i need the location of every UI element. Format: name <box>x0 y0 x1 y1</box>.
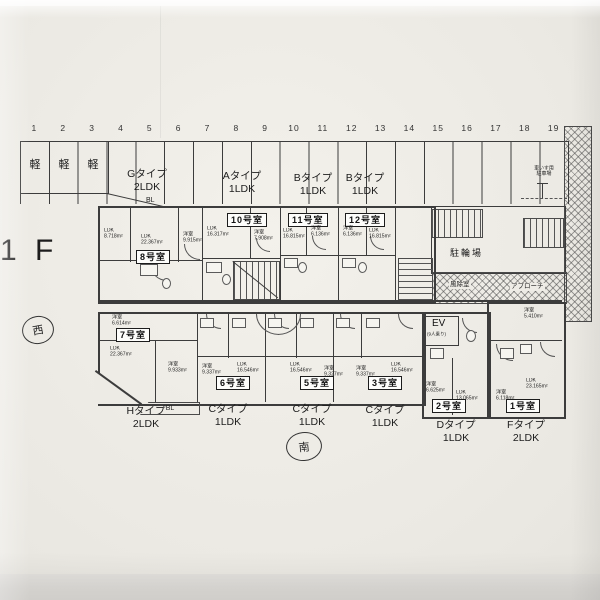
parking-stall-number: 13 <box>366 123 395 135</box>
wheelchair-parking-note: 車いす用 駐車場 <box>521 166 568 177</box>
room-area-label: 洋室 6.614m² <box>112 315 131 326</box>
unit-number-badge: 12号室 <box>345 213 385 227</box>
type-label-g: Gタイプ 2LDK <box>110 168 184 194</box>
type-layout: 2LDK <box>126 418 166 431</box>
room-area-label: 洋室 9.933m² <box>168 362 187 373</box>
interior-wall <box>487 340 562 341</box>
wheelchair-parking-marker <box>537 183 548 184</box>
type-name: Dタイプ <box>436 419 476 432</box>
room-area: 22.367m² <box>110 352 132 358</box>
approach-label: アプローチ <box>510 283 545 291</box>
interior-wall <box>228 314 229 358</box>
type-name: Gタイプ <box>110 168 184 181</box>
fixture-box <box>520 344 532 354</box>
parking-stall-number: 16 <box>453 123 482 135</box>
toilet-fixture <box>298 262 307 273</box>
unit-number-badge: 11号室 <box>288 213 328 227</box>
room-area: 23.165m² <box>526 384 548 390</box>
interior-wall <box>361 314 362 358</box>
room-area-label: 洋室 9.915m² <box>183 232 202 243</box>
interior-wall <box>155 340 156 402</box>
room-area: 6.136m² <box>311 232 330 238</box>
wheelchair-stall-dashed-line <box>521 198 567 199</box>
compass-west-label: 西 <box>31 321 45 339</box>
type-layout: 1LDK <box>328 185 402 198</box>
room-area: 16.546m² <box>237 368 259 374</box>
interior-wall <box>178 208 179 262</box>
type-layout: 1LDK <box>292 416 332 429</box>
room-area: 16.317m² <box>207 232 229 238</box>
floorplan-photo: 1 2 3 4 5 6 7 8 9 10 11 12 13 14 15 16 1… <box>0 0 600 600</box>
unit-divider-wall <box>202 208 203 300</box>
parking-stall-number: 14 <box>395 123 424 135</box>
room-area-label: LDK 22.367m² <box>141 234 163 245</box>
unit-number-badge: 5号室 <box>300 376 334 390</box>
fixture-box <box>300 318 314 328</box>
parking-stall-number: 11 <box>308 123 337 135</box>
balcony-strip: BL <box>140 402 200 415</box>
room-area-label: 洋室 6.136m² <box>343 226 362 237</box>
fixture-box <box>284 258 298 268</box>
interior-wall <box>202 258 280 259</box>
elevator-label: EV <box>432 318 445 329</box>
interior-wall <box>280 255 395 256</box>
parking-stall-number: 7 <box>193 123 222 135</box>
room-area-label: 洋室 5.410m² <box>524 308 543 319</box>
elevator-capacity: (9人乗り) <box>427 331 446 337</box>
unit-divider-wall <box>280 208 281 300</box>
bicycle-parking-label: 駐輪場 <box>450 246 483 259</box>
room-area: 16.815m² <box>369 234 391 240</box>
room-area-label: LDK 8.718m² <box>104 228 123 239</box>
type-layout: 1LDK <box>205 183 279 196</box>
hatched-border-strip <box>564 126 592 322</box>
unit-divider-wall <box>197 314 198 402</box>
paper-crease <box>160 6 161 138</box>
room-area: 22.367m² <box>141 240 163 246</box>
room-area: 16.546m² <box>391 368 413 374</box>
windbreak-room-label: 風除室 <box>449 281 471 289</box>
stairwell <box>398 258 433 301</box>
parking-stall-number: 12 <box>337 123 366 135</box>
bicycle-rack <box>431 209 483 238</box>
room-area: 6.625m² <box>426 388 445 394</box>
room-area-label: LDK 16.546m² <box>391 362 413 373</box>
type-label-c3: Cタイプ 1LDK <box>365 404 405 430</box>
room-area: 9.915m² <box>183 238 202 244</box>
floor-label: 1 F <box>0 234 58 268</box>
interior-wall <box>197 356 265 357</box>
parking-stall-number: 9 <box>251 123 280 135</box>
unit-divider-wall <box>338 208 339 300</box>
type-layout: 2LDK <box>110 181 184 194</box>
type-name: Cタイプ <box>292 403 332 416</box>
kei-stall-label: 軽 <box>55 156 73 172</box>
kei-stall-label: 軽 <box>84 156 102 172</box>
parking-stall-number: 5 <box>135 123 164 135</box>
type-name: Cタイプ <box>208 403 248 416</box>
interior-wall <box>333 356 422 357</box>
room-area: 6.614m² <box>112 321 131 327</box>
room-area-label: LDK 16.815m² <box>369 228 391 239</box>
unit-divider-wall <box>395 208 396 300</box>
fixture-box <box>342 258 356 268</box>
room-area-label: 洋室 6.625m² <box>426 382 445 393</box>
type-label-f: Fタイプ 2LDK <box>506 419 546 445</box>
fixture-box <box>140 264 158 276</box>
room-area-label: LDK 23.165m² <box>526 378 548 389</box>
type-name: Bタイプ <box>328 172 402 185</box>
wheelchair-parking-marker <box>542 183 543 198</box>
fixture-box <box>500 348 514 359</box>
parking-stall-number: 4 <box>107 123 136 135</box>
toilet-fixture <box>358 262 367 273</box>
balcony-label-top: BL <box>146 197 155 204</box>
bicycle-rack <box>523 218 564 248</box>
room-area-label: LDK 22.367m² <box>110 346 132 357</box>
toilet-fixture <box>222 274 231 285</box>
fixture-box <box>200 318 214 328</box>
type-name: Aタイプ <box>205 170 279 183</box>
unit-number-badge: 7号室 <box>116 328 150 342</box>
compass-south-label: 南 <box>298 438 311 455</box>
interior-wall <box>130 208 131 262</box>
parking-stall-number: 2 <box>49 123 78 135</box>
toilet-fixture <box>162 278 171 289</box>
fixture-box <box>366 318 380 328</box>
unit-number-badge: 1号室 <box>506 399 540 413</box>
parking-stall-number: 1 <box>20 123 49 135</box>
unit-number-badge: 2号室 <box>432 399 466 413</box>
parking-stall-number: 3 <box>78 123 107 135</box>
unit-number-badge: 3号室 <box>368 376 402 390</box>
type-layout: 1LDK <box>208 416 248 429</box>
fixture-box <box>206 262 222 273</box>
room-area-label: LDK 16.317m² <box>207 226 229 237</box>
room-area: 6.136m² <box>343 232 362 238</box>
parking-number-row: 1 2 3 4 5 6 7 8 9 10 11 12 13 14 15 16 1… <box>20 123 568 135</box>
type-label-d: Dタイプ 1LDK <box>436 419 476 445</box>
room-area: 9.337m² <box>202 370 221 376</box>
room-area: 7.908m² <box>254 236 273 242</box>
room-area-label: 洋室 7.908m² <box>254 230 273 241</box>
type-label-c2: Cタイプ 1LDK <box>292 403 332 429</box>
room-area: 5.410m² <box>524 314 543 320</box>
unit-number-badge: 6号室 <box>216 376 250 390</box>
room-area-label: 洋室 6.136m² <box>311 226 330 237</box>
note-line: 駐車場 <box>537 171 552 176</box>
interior-wall <box>265 356 333 357</box>
unit-number-badge: 8号室 <box>136 250 170 264</box>
kei-stall-label: 軽 <box>26 156 44 172</box>
room-area: 16.546m² <box>290 368 312 374</box>
fixture-box <box>268 318 282 328</box>
parking-stall-number: 6 <box>164 123 193 135</box>
photo-bottom-edge <box>0 574 600 600</box>
room-area: 16.815m² <box>283 234 305 240</box>
fixture-box <box>336 318 350 328</box>
fixture-box <box>430 348 444 359</box>
type-label-b2: Bタイプ 1LDK <box>328 172 402 198</box>
room-area-label: 洋室 9.337m² <box>202 364 221 375</box>
parking-stall-number: 18 <box>510 123 539 135</box>
parking-stall-number: 8 <box>222 123 251 135</box>
room-area: 9.933m² <box>168 368 187 374</box>
type-name: Fタイプ <box>506 419 546 432</box>
type-name: Cタイプ <box>365 404 405 417</box>
unit-number-badge: 10号室 <box>227 213 267 227</box>
parking-stall-number: 17 <box>482 123 511 135</box>
room-area-label: LDK 16.546m² <box>237 362 259 373</box>
parking-stall-number: 10 <box>280 123 309 135</box>
type-layout: 1LDK <box>365 417 405 430</box>
toilet-fixture <box>466 330 476 342</box>
type-label-c1: Cタイプ 1LDK <box>208 403 248 429</box>
balcony-label-bottom: BL <box>166 405 175 412</box>
room-area-label: LDK 16.815m² <box>283 228 305 239</box>
room-area-label: LDK 16.546m² <box>290 362 312 373</box>
parking-stall-number: 15 <box>424 123 453 135</box>
room-area: 8.718m² <box>104 234 123 240</box>
type-layout: 2LDK <box>506 432 546 445</box>
type-layout: 1LDK <box>436 432 476 445</box>
fixture-box <box>232 318 246 328</box>
type-label-a: Aタイプ 1LDK <box>205 170 279 196</box>
